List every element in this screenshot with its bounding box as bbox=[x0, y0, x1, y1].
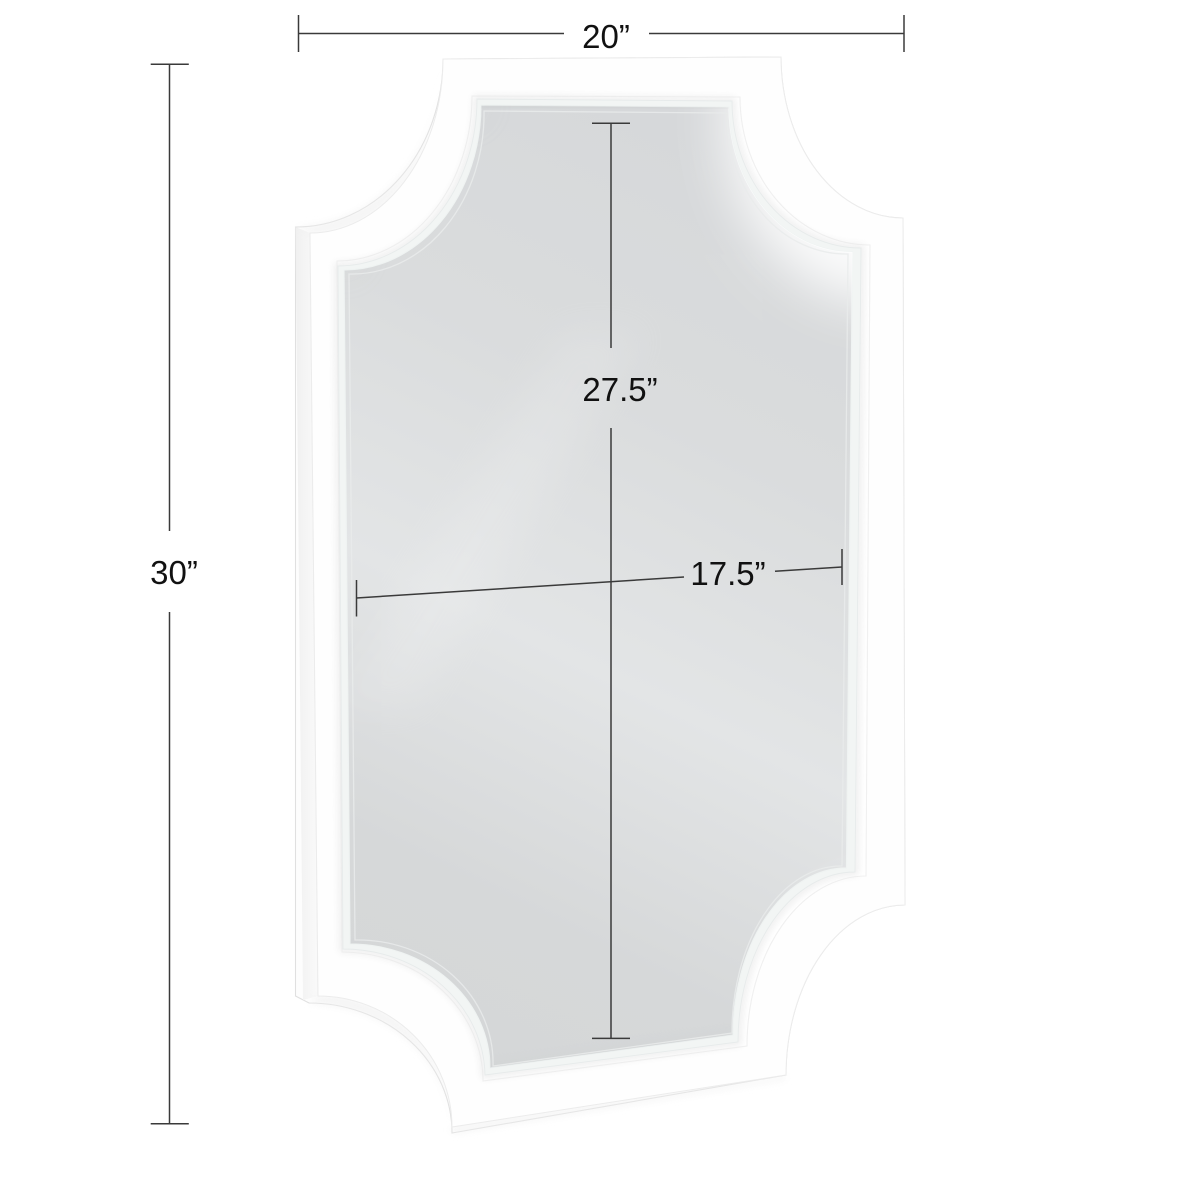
svg-text:20”: 20” bbox=[582, 18, 630, 55]
svg-text:17.5”: 17.5” bbox=[690, 555, 765, 592]
svg-text:30”: 30” bbox=[150, 554, 198, 591]
svg-text:27.5”: 27.5” bbox=[582, 371, 657, 408]
